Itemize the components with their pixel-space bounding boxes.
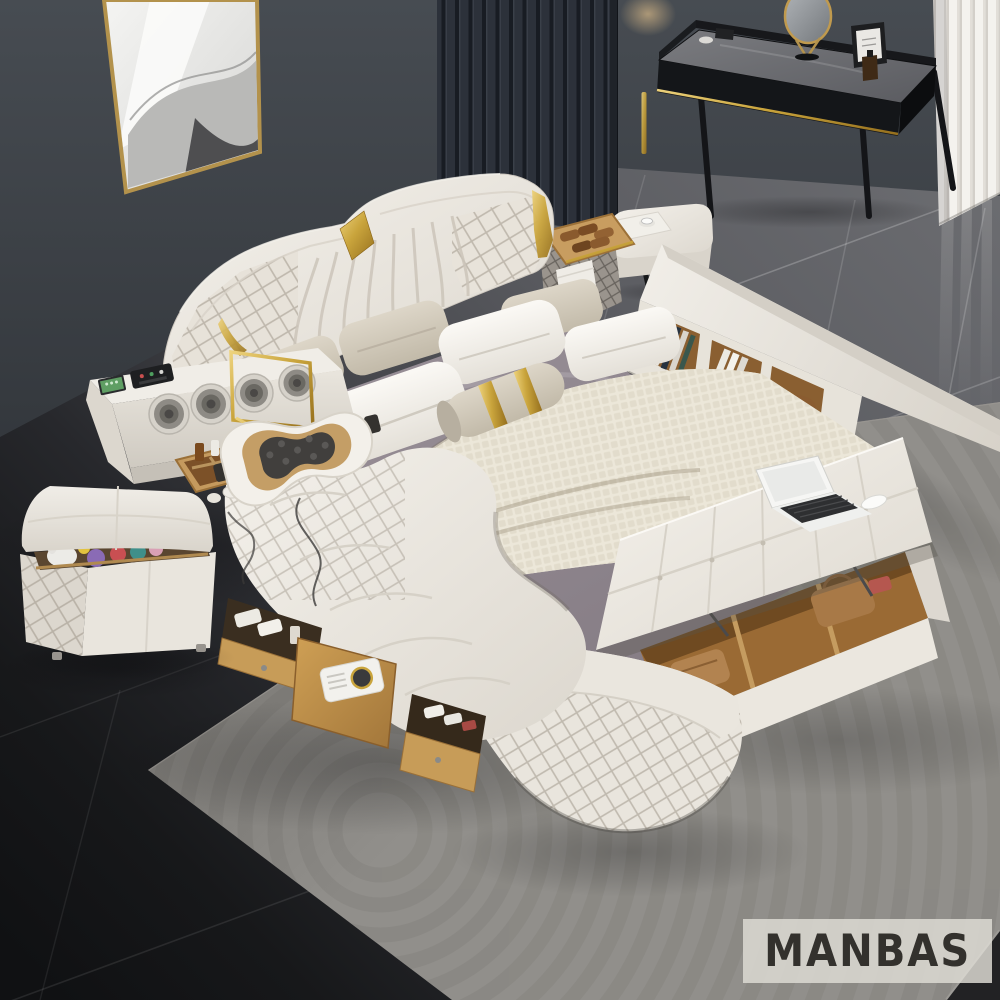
vanity-mirror [785, 0, 831, 43]
scene-canvas [0, 0, 1000, 1000]
coffee-cup [642, 218, 653, 224]
brand-watermark-text: MANBAS [764, 925, 971, 977]
vanity-shadow [680, 196, 940, 228]
lamp-pole [642, 92, 647, 154]
perfume [211, 440, 219, 456]
perfume [195, 443, 204, 461]
perfume-bottle [862, 55, 878, 81]
brand-watermark: MANBAS [743, 919, 992, 983]
storage-ottoman [15, 486, 235, 680]
bedroom-product-photo: MANBAS [0, 0, 1000, 1000]
